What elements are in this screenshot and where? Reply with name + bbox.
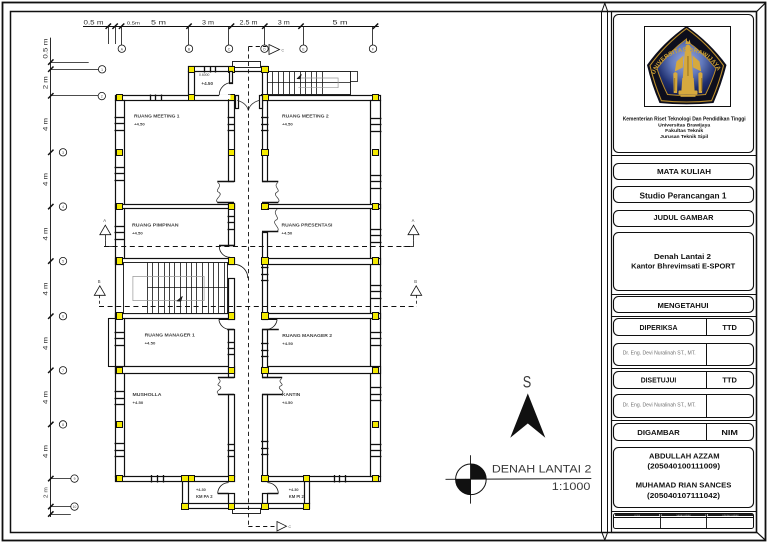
svg-text:MUHAMAD RIAN SANCES: MUHAMAD RIAN SANCES bbox=[636, 480, 732, 489]
svg-text:+4.50: +4.50 bbox=[134, 122, 146, 127]
svg-text:1:1000: 1:1000 bbox=[552, 481, 591, 493]
svg-text:Fakultas Teknik: Fakultas Teknik bbox=[665, 128, 703, 134]
svg-text:Kantor Bhrevimsati E-SPORT: Kantor Bhrevimsati E-SPORT bbox=[631, 262, 736, 271]
svg-text:Jurusan Teknik Sipil: Jurusan Teknik Sipil bbox=[660, 134, 709, 140]
svg-text:+4.30: +4.30 bbox=[289, 487, 299, 492]
svg-text:A: A bbox=[412, 218, 415, 223]
svg-text:DIGAMBAR: DIGAMBAR bbox=[637, 430, 680, 437]
svg-text:RUANG MEETING 1: RUANG MEETING 1 bbox=[134, 114, 180, 119]
svg-text:MATA KULIAH: MATA KULIAH bbox=[657, 168, 711, 176]
svg-text:Universitas Brawijaya: Universitas Brawijaya bbox=[658, 122, 710, 128]
svg-text:(205040107111042): (205040107111042) bbox=[647, 491, 721, 500]
svg-text:4 m: 4 m bbox=[43, 283, 49, 296]
svg-text:7: 7 bbox=[62, 369, 64, 373]
svg-text:8: 8 bbox=[62, 423, 64, 427]
svg-text:MUSHOLLA: MUSHOLLA bbox=[133, 392, 163, 397]
svg-text:KM PI 2: KM PI 2 bbox=[289, 494, 305, 499]
svg-text:TTD: TTD bbox=[722, 325, 737, 332]
svg-text:10: 10 bbox=[73, 505, 77, 509]
svg-text:+4.50: +4.50 bbox=[201, 81, 213, 86]
svg-text:3 m: 3 m bbox=[202, 19, 214, 26]
svg-text:NAMA LEMBAR: NAMA LEMBAR bbox=[676, 514, 691, 517]
svg-text:4 m: 4 m bbox=[43, 391, 49, 404]
svg-text:B: B bbox=[98, 279, 101, 284]
svg-text:3: 3 bbox=[62, 151, 64, 155]
svg-text:RUANG MEETING 2: RUANG MEETING 2 bbox=[282, 114, 329, 119]
svg-text:5 m: 5 m bbox=[333, 19, 348, 26]
svg-text:+4.30: +4.30 bbox=[196, 487, 206, 492]
svg-text:4 m: 4 m bbox=[43, 228, 49, 241]
svg-text:2 m: 2 m bbox=[43, 76, 49, 89]
svg-text:Dr. Eng. Devi Nuralinah ST., M: Dr. Eng. Devi Nuralinah ST., MT. bbox=[623, 351, 696, 357]
svg-text:Dr. Eng. Devi Nuralinah ST., M: Dr. Eng. Devi Nuralinah ST., MT. bbox=[623, 402, 696, 408]
svg-text:A: A bbox=[103, 218, 106, 223]
svg-text:0.6000: 0.6000 bbox=[199, 73, 209, 77]
svg-text:2: 2 bbox=[101, 95, 103, 99]
svg-text:4 m: 4 m bbox=[43, 337, 49, 350]
svg-text:MENGETAHUI: MENGETAHUI bbox=[658, 302, 709, 310]
svg-text:+4.50: +4.50 bbox=[282, 341, 294, 346]
svg-text:4 m: 4 m bbox=[43, 445, 49, 458]
svg-text:4 m: 4 m bbox=[43, 173, 49, 186]
svg-text:+4.50: +4.50 bbox=[132, 231, 144, 236]
svg-text:+4.50: +4.50 bbox=[145, 341, 157, 346]
svg-text:JUDUL GAMBAR: JUDUL GAMBAR bbox=[654, 214, 714, 222]
svg-text:DISETUJUI: DISETUJUI bbox=[641, 378, 677, 385]
svg-text:6: 6 bbox=[62, 315, 64, 319]
svg-text:+4.50: +4.50 bbox=[133, 400, 145, 405]
svg-text:KODE: KODE bbox=[634, 515, 640, 517]
svg-text:+4.50: +4.50 bbox=[282, 122, 294, 127]
svg-text:Studio Perancangan 1: Studio Perancangan 1 bbox=[640, 192, 728, 201]
svg-text:RUANG PRESENTASI: RUANG PRESENTASI bbox=[282, 223, 333, 228]
svg-text:B: B bbox=[414, 279, 417, 284]
svg-text:1: 1 bbox=[101, 68, 103, 72]
svg-text:0.5m: 0.5m bbox=[127, 21, 140, 26]
svg-text:0.5 m: 0.5 m bbox=[43, 39, 49, 59]
svg-text:4 m: 4 m bbox=[43, 118, 49, 131]
svg-text:+4.50: +4.50 bbox=[282, 400, 294, 405]
svg-text:RUANG MANAGER 2: RUANG MANAGER 2 bbox=[282, 333, 332, 338]
svg-text:Denah Lantai 2: Denah Lantai 2 bbox=[654, 252, 711, 261]
svg-text:2 m: 2 m bbox=[43, 486, 49, 498]
svg-text:KM PA 2: KM PA 2 bbox=[196, 494, 213, 499]
svg-text:5: 5 bbox=[62, 260, 64, 264]
svg-text:5 m: 5 m bbox=[151, 19, 166, 26]
svg-text:RUANG MANAGER 1: RUANG MANAGER 1 bbox=[145, 333, 196, 338]
svg-text:S: S bbox=[523, 374, 532, 392]
svg-text:KANTIN: KANTIN bbox=[282, 392, 301, 397]
svg-text:9: 9 bbox=[74, 477, 76, 481]
svg-text:4: 4 bbox=[62, 205, 64, 209]
svg-text:2.5 m: 2.5 m bbox=[240, 19, 258, 26]
svg-text:JUMLAH LEMBAR: JUMLAH LEMBAR bbox=[722, 514, 739, 517]
svg-text:NIM: NIM bbox=[721, 430, 738, 437]
svg-text:RUANG PIMPINAN: RUANG PIMPINAN bbox=[132, 223, 179, 228]
svg-text:DIPERIKSA: DIPERIKSA bbox=[640, 325, 678, 332]
svg-text:TTD: TTD bbox=[722, 378, 737, 385]
svg-text:Kementerian Riset Teknologi Da: Kementerian Riset Teknologi Dan Pendidik… bbox=[623, 116, 747, 122]
svg-text:0.5 m: 0.5 m bbox=[84, 19, 104, 26]
svg-text:+4.50: +4.50 bbox=[282, 231, 294, 236]
svg-text:DENAH LANTAI 2: DENAH LANTAI 2 bbox=[492, 463, 592, 475]
svg-text:F: F bbox=[372, 47, 374, 51]
svg-text:3 m: 3 m bbox=[278, 19, 290, 26]
svg-text:ABDULLAH AZZAM: ABDULLAH AZZAM bbox=[649, 452, 720, 461]
svg-text:(205040100111009): (205040100111009) bbox=[647, 462, 720, 471]
